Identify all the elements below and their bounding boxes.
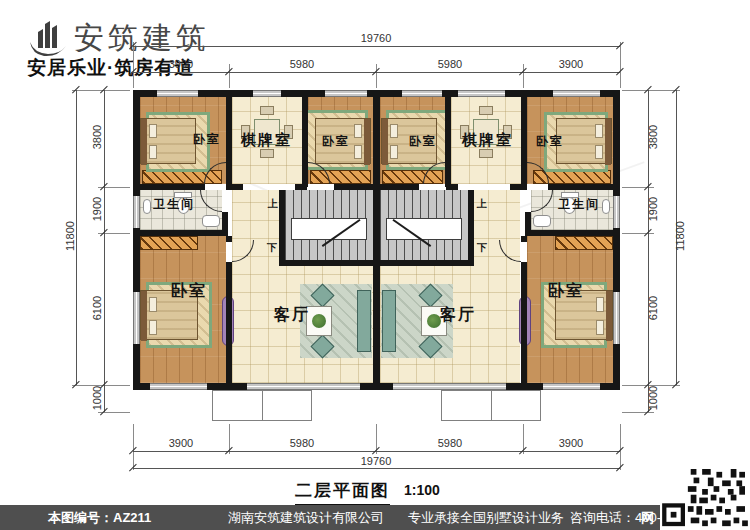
wall-interior: [548, 184, 614, 190]
window: [133, 292, 140, 344]
room-label-bedroom-t2: 卧室: [322, 133, 350, 150]
wall-interior: [510, 184, 527, 190]
stair-up-label-right: 上: [477, 197, 487, 211]
window: [247, 383, 360, 390]
ext-line: [133, 42, 134, 88]
window: [613, 196, 620, 228]
sink: [202, 215, 220, 227]
room-label-bedroom-t3: 卧室: [409, 133, 437, 150]
wardrobe: [140, 236, 198, 250]
ext-line: [376, 64, 377, 88]
wall-stairwell: [279, 260, 373, 266]
brand-logo-icon: [24, 12, 72, 60]
dim-bottom-s4: 3900: [541, 437, 601, 449]
stair-down-label-left: 下: [267, 241, 277, 255]
room-label-living-right: 客厅: [440, 305, 476, 326]
wall-interior: [226, 262, 232, 383]
wall-stairwell: [279, 190, 285, 266]
dim-left-s2: 1900: [91, 187, 103, 231]
stair-down-label-right: 下: [477, 241, 487, 255]
room-label-living-left: 客厅: [274, 305, 310, 326]
wall-interior: [445, 97, 451, 187]
window: [393, 383, 506, 390]
ext-line: [229, 64, 230, 88]
window: [402, 90, 442, 97]
dim-line-left-segments: [104, 90, 105, 412]
qr-code-panel: [660, 467, 750, 530]
dim-tick: [616, 464, 624, 472]
window: [613, 292, 620, 344]
window: [133, 196, 140, 228]
chair: [260, 149, 274, 158]
dim-bottom-s2: 5980: [272, 437, 332, 449]
window: [253, 90, 281, 97]
room-label-bedroom-bl: 卧室: [171, 281, 207, 302]
dim-top-overall: 19760: [346, 32, 406, 44]
plant: [312, 314, 326, 328]
wall-right: [613, 90, 620, 390]
window: [157, 90, 198, 97]
wall-interior: [226, 97, 232, 187]
room-label-chess-left: 棋牌室: [241, 131, 292, 150]
dim-bottom-overall: 19760: [346, 455, 406, 467]
room-label-bathroom-right: 卫生间: [558, 196, 600, 213]
balcony-divider: [262, 390, 263, 421]
room-label-bedroom-tr: 卧室: [536, 133, 564, 150]
company-name: 湖南安筑建筑设计有限公司: [228, 509, 384, 527]
room-label-bedroom-br: 卧室: [548, 281, 584, 302]
wall-stairwell: [380, 260, 474, 266]
brand-name: 安筑建筑: [74, 18, 210, 59]
dim-line-left-overall: [76, 90, 77, 385]
stair-up-label-left: 上: [268, 197, 278, 211]
wall-interior: [139, 184, 205, 190]
chair: [479, 106, 493, 115]
dim-right-s3: 6100: [647, 286, 659, 330]
drawing-title: 二层平面图: [295, 479, 390, 506]
web-badge: 网: [641, 509, 654, 527]
ext-line: [622, 90, 680, 91]
sink: [533, 215, 551, 227]
dim-right-s1: 3800: [647, 115, 659, 159]
drawing-scale: 1:100: [404, 482, 440, 498]
dim-line-top-overall: [133, 46, 620, 47]
wall-bath-bottom: [527, 230, 614, 236]
dim-right-overall: 11800: [674, 214, 686, 258]
dim-top-s1: 3900: [151, 58, 211, 70]
wall-bath-bottom: [139, 230, 226, 236]
wall-interior: [295, 184, 307, 190]
ext-line: [622, 233, 654, 234]
room-label-bathroom-left: 卫生间: [153, 196, 195, 213]
dim-left-overall: 11800: [64, 214, 76, 258]
bath-mat: [602, 199, 610, 214]
dim-left-s4: 1000: [91, 376, 103, 420]
window: [325, 90, 367, 97]
window: [150, 383, 207, 390]
wardrobe: [555, 236, 613, 250]
room-label-bedroom-tl: 卧室: [193, 131, 221, 148]
dim-top-s4: 3900: [541, 58, 601, 70]
dim-top-s2: 5980: [272, 58, 332, 70]
sofa: [382, 290, 396, 352]
ext-line: [523, 64, 524, 88]
dim-bottom-s1: 3900: [151, 437, 211, 449]
wall-interior: [226, 184, 243, 190]
wall-stairwell: [468, 190, 474, 266]
wall-interior: [521, 262, 527, 383]
bed: [556, 118, 612, 164]
dim-left-s3: 6100: [91, 286, 103, 330]
window: [458, 90, 505, 97]
wall-interior: [521, 236, 527, 242]
dim-bottom-s3: 5980: [420, 437, 480, 449]
wall-center: [373, 97, 380, 383]
wall-left: [133, 90, 140, 390]
balcony-divider: [491, 390, 492, 421]
dim-line-bottom-overall: [133, 468, 620, 469]
dim-top-s3: 5980: [420, 58, 480, 70]
wall-interior: [446, 184, 458, 190]
window: [543, 383, 600, 390]
qr-code: [662, 469, 748, 529]
plant: [427, 314, 441, 328]
dim-right-s2: 1900: [647, 187, 659, 231]
company-service: 专业承接全国别墅设计业务: [408, 509, 564, 527]
sofa: [357, 290, 371, 352]
wall-interior: [334, 184, 373, 190]
bed: [140, 118, 196, 164]
chair: [260, 106, 274, 115]
chair: [479, 149, 493, 158]
ext-line: [620, 42, 621, 88]
wall-interior: [380, 184, 419, 190]
floor-plan-sheet: 安筑建筑 安居乐业·筑房有道: [0, 0, 750, 530]
room-label-chess-right: 棋牌室: [462, 131, 513, 150]
bath-mat: [143, 199, 151, 214]
dim-right-s4: 1000: [647, 376, 659, 420]
window: [553, 90, 600, 97]
sheet-number: 本图编号：AZ211: [48, 509, 151, 527]
dim-left-s1: 3800: [91, 115, 103, 159]
wall-top: [133, 90, 620, 97]
